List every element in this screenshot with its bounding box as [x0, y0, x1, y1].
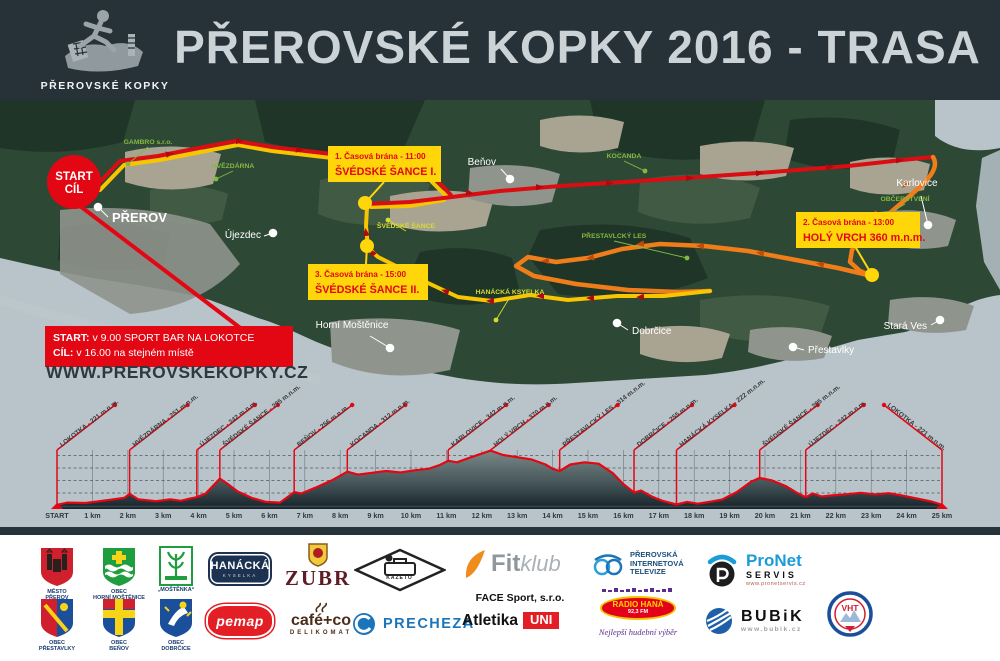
precheza-icon-icon [352, 612, 376, 636]
svg-text:HVĚZDÁRNA: HVĚZDÁRNA [212, 161, 255, 170]
km-tick-label: 24 km [896, 511, 916, 520]
sponsor-line: FACE Sport, s.r.o. [476, 592, 565, 604]
sponsor-line: „MOŠTĚNKA“ [158, 587, 195, 593]
sponsor-line: café+co [291, 612, 351, 630]
sponsor-pemap: pemap [208, 606, 272, 636]
km-tick-label: 16 km [613, 511, 633, 520]
sponsor-line: ZUBR [285, 566, 351, 590]
km-tick-label: 23 km [861, 511, 881, 520]
km-tick-label: 15 km [578, 511, 598, 520]
sponsor-line: SERVIS [746, 570, 797, 580]
sponsor-pronet-servis: ProNetSERVISwww.pronetservis.cz [704, 550, 816, 588]
logo-caption: PŘEROVSKÉ KOPKY [30, 80, 180, 92]
sponsor-line: Fit [491, 550, 520, 578]
km-tick-label: 22 km [826, 511, 846, 520]
sponsor-line: RADIO HANÁ [612, 600, 663, 609]
fitswoosh-icon [462, 546, 488, 582]
sponsor-text: ProNetSERVISwww.pronetservis.cz [746, 551, 806, 587]
km-tick-label: 4 km [190, 511, 206, 520]
sponsor-line: KAZETO [352, 576, 447, 582]
sponsor-precheza: PRECHEZA [352, 612, 458, 636]
sponsor-line: PRECHEZA [383, 616, 475, 633]
svg-text:Dobrčice: Dobrčice [632, 326, 672, 337]
sponsor-text: BUBiKwww.bubik.cz [741, 608, 804, 634]
svg-text:KOCANDA: KOCANDA [607, 153, 642, 160]
sponsor-text: café+coDELIKOMAT [290, 614, 352, 637]
website-url: WWW.PREROVSKEKOPKY.CZ [46, 362, 308, 383]
sponsor-line: www.bubik.cz [741, 626, 802, 633]
km-tick-label: 11 km [436, 511, 456, 520]
shield-prerov-icon [39, 546, 75, 588]
zubr-emblem-icon [303, 542, 333, 568]
svg-text:OBČERSTVENÍ: OBČERSTVENÍ [880, 194, 930, 203]
info-start-label: START: [53, 332, 90, 344]
info-line-start: START: v 9.00 SPORT BAR NA LOKOTCE [53, 331, 285, 346]
sponsor-line: DELIKOMAT [290, 630, 352, 637]
km-tick-label: 9 km [367, 511, 383, 520]
sponsor-kct-vht: VHT [826, 591, 874, 638]
sponsor-text: PŘEROVSKÁINTERNETOVÁTELEVIZE [630, 551, 684, 577]
km-tick-label: 8 km [332, 511, 348, 520]
info-finish-text: v 16.00 na stejném místě [76, 347, 193, 359]
svg-text:Beňov: Beňov [468, 157, 496, 168]
sponsor-bubik: BUBiKwww.bubik.cz [704, 606, 818, 636]
svg-text:Horní Moštěnice: Horní Moštěnice [316, 320, 389, 331]
svg-text:GAMBRO s.r.o.: GAMBRO s.r.o. [124, 139, 173, 146]
sponsor-text: AtletikaUNI [462, 612, 559, 630]
info-line-finish: CÍL: v 16.00 na stejném místě [53, 346, 285, 361]
sponsor-zubr: ZUBR [282, 542, 354, 590]
svg-text:HOLÝ VRCH 360 m.n.m.: HOLÝ VRCH 360 m.n.m. [803, 231, 925, 244]
sponsor-text: Nejlepší hudební výběr [599, 628, 677, 638]
km-tick-label: 14 km [542, 511, 562, 520]
sponsor-atletika-uni: AtletikaUNI [462, 612, 578, 630]
sponsor-line: pemap [216, 613, 264, 629]
shield-hm-icon [101, 546, 137, 588]
sponsor-obec-benov: OBECBEŇOV [88, 597, 150, 653]
map-and-profile: GAMBRO s.r.o.HVĚZDÁRNAKOCANDAPŘESTAVLCKÝ… [0, 100, 1000, 535]
km-tick-label: START [45, 511, 69, 520]
sponsor-line: Atletika [462, 612, 518, 630]
svg-text:PŘESTAVLCKÝ LES: PŘESTAVLCKÝ LES [582, 231, 647, 240]
pronet-icon-icon [704, 550, 740, 588]
sponsor-radio-hana-slogan: Nejlepší hudební výběr [588, 628, 688, 638]
km-tick-label: 18 km [684, 511, 704, 520]
sponsor-text: „MOŠTĚNKA“ [158, 587, 195, 593]
km-tick-label: 3 km [155, 511, 171, 520]
svg-text:ŠVÉDSKÉ ŠANCE II.: ŠVÉDSKÉ ŠANCE II. [315, 283, 419, 296]
kazeto-icon [354, 548, 446, 592]
sponsor-line: 92,3 FM [628, 609, 648, 615]
sponsor-line: PŘESTAVLKY [39, 646, 75, 652]
sponsor-mostenka: „MOŠTĚNKA“ [150, 546, 202, 593]
poster-title: PŘEROVSKÉ KOPKY 2016 - TRASA [170, 20, 985, 74]
sponsor-kazeto: KAZETO [352, 548, 447, 593]
svg-text:HANÁCKÁ KSYELKA: HANÁCKÁ KSYELKA [476, 287, 545, 296]
km-tick-label: 10 km [401, 511, 421, 520]
km-tick-label: 25 km [932, 511, 952, 520]
runner-logo-icon [40, 4, 170, 74]
sponsor-radio-hana: RADIO HANÁ92,3 FM [592, 588, 684, 620]
sponsor-text: OBECBEŇOV [109, 640, 129, 653]
km-tick-label: 17 km [649, 511, 669, 520]
sponsor-line: KYSELKA [223, 573, 258, 578]
shield-prestavlky-icon [39, 597, 75, 639]
info-finish-label: CÍL: [53, 347, 73, 359]
sponsor-strip: MĚSTOPŘEROVOBECHORNÍ MOŠTĚNICE„MOŠTĚNKA“… [0, 535, 1000, 661]
sponsor-text: pemap [216, 613, 264, 629]
sponsor-obec-horni-mostenice: OBECHORNÍ MOŠTĚNICE [88, 546, 150, 602]
sponsor-prerovska-tv: PŘEROVSKÁINTERNETOVÁTELEVIZE [592, 550, 684, 578]
sponsor-line: TELEVIZE [630, 568, 666, 577]
svg-text:ŠVÉDSKÉ ŠANCE I.: ŠVÉDSKÉ ŠANCE I. [335, 165, 436, 178]
eqline-icon [602, 588, 674, 593]
sponsor-text: OBECPŘESTAVLKY [39, 640, 75, 653]
sponsor-line: BUBiK [741, 608, 804, 626]
km-tick-label: 12 km [472, 511, 492, 520]
sponsor-mesto-prerov: MĚSTOPŘEROV [28, 546, 86, 602]
shield-dobrcice-icon [158, 597, 194, 639]
sponsor-fitklub: Fitklub [462, 546, 577, 582]
svg-text:Přestavlky: Přestavlky [808, 345, 854, 356]
sponsor-text: RADIO HANÁ92,3 FM [600, 596, 675, 620]
sponsor-line: BEŇOV [109, 646, 129, 652]
sponsor-line: UNI [523, 612, 559, 629]
km-tick-label: 21 km [790, 511, 810, 520]
km-tick-label: 7 km [297, 511, 313, 520]
sponsor-face-sport: FACE Sport, s.r.o. [464, 592, 576, 604]
sponsor-text: PRECHEZA [383, 616, 475, 633]
km-tick-label: 6 km [261, 511, 277, 520]
shield-benov-icon [101, 597, 137, 639]
sponsor-text: ZUBR [285, 569, 351, 590]
kct-badge-icon [827, 591, 873, 637]
svg-text:CÍL: CÍL [65, 183, 84, 196]
sponsor-text: HANÁCKÁKYSELKA [210, 560, 269, 578]
km-tick-label: 5 km [226, 511, 242, 520]
sponsor-line: klub [520, 551, 560, 576]
sponsor-obec-prestavlky: OBECPŘESTAVLKY [28, 597, 86, 653]
sponsor-line: DOBRČICE [161, 646, 190, 652]
sponsor-text: FACE Sport, s.r.o. [476, 592, 565, 604]
mostenka-icon [159, 546, 193, 586]
km-tick-label: 1 km [84, 511, 100, 520]
sponsor-text: OBECDOBRČICE [161, 640, 190, 653]
svg-text:1. Časová brána - 11:00: 1. Časová brána - 11:00 [335, 150, 426, 161]
start-finish-marker: STARTCÍL [47, 155, 101, 209]
svg-text:ŠVÉDSKÉ ŠANCE: ŠVÉDSKÉ ŠANCE [377, 221, 436, 230]
svg-text:PŘEROV: PŘEROV [112, 210, 167, 225]
sponsor-line: HANÁCKÁ [210, 560, 269, 573]
bubik-globe-icon [704, 606, 734, 636]
svg-text:Karlovice: Karlovice [896, 178, 938, 189]
header: PŘEROVSKÉ KOPKY PŘEROVSKÉ KOPKY 2016 - T… [0, 0, 1000, 100]
svg-text:START: START [55, 171, 92, 183]
sponsor-cafe-co-delikomat: café+coDELIKOMAT [282, 602, 360, 637]
sponsor-obec-dobrcice: OBECDOBRČICE [150, 597, 202, 653]
sponsor-line: VHT [826, 604, 874, 614]
sponsor-text: Fitklub [491, 550, 561, 578]
sponsor-line: www.pronetservis.cz [746, 581, 806, 587]
km-tick-label: 20 km [755, 511, 775, 520]
info-start-text: v 9.00 SPORT BAR NA LOKOTCE [92, 332, 254, 344]
svg-text:3. Časová brána - 15:00: 3. Časová brána - 15:00 [315, 268, 406, 279]
sponsor-line: Nejlepší hudební výběr [599, 628, 677, 638]
sponsor-line: ProNet [746, 551, 802, 571]
sponsor-hanacka-kyselka: HANÁCKÁKYSELKA [208, 552, 272, 586]
event-logo: PŘEROVSKÉ KOPKY [30, 4, 180, 98]
km-tick-label: 19 km [719, 511, 739, 520]
svg-text:Stará Ves: Stará Ves [884, 321, 927, 332]
tvicon-icon [592, 550, 624, 578]
poster: PŘEROVSKÉ KOPKY PŘEROVSKÉ KOPKY 2016 - T… [0, 0, 1000, 661]
svg-text:2. Časová brána - 13:00: 2. Časová brána - 13:00 [803, 216, 894, 227]
km-tick-label: 13 km [507, 511, 527, 520]
km-tick-label: 2 km [120, 511, 136, 520]
svg-text:Újezdec: Újezdec [225, 228, 261, 241]
